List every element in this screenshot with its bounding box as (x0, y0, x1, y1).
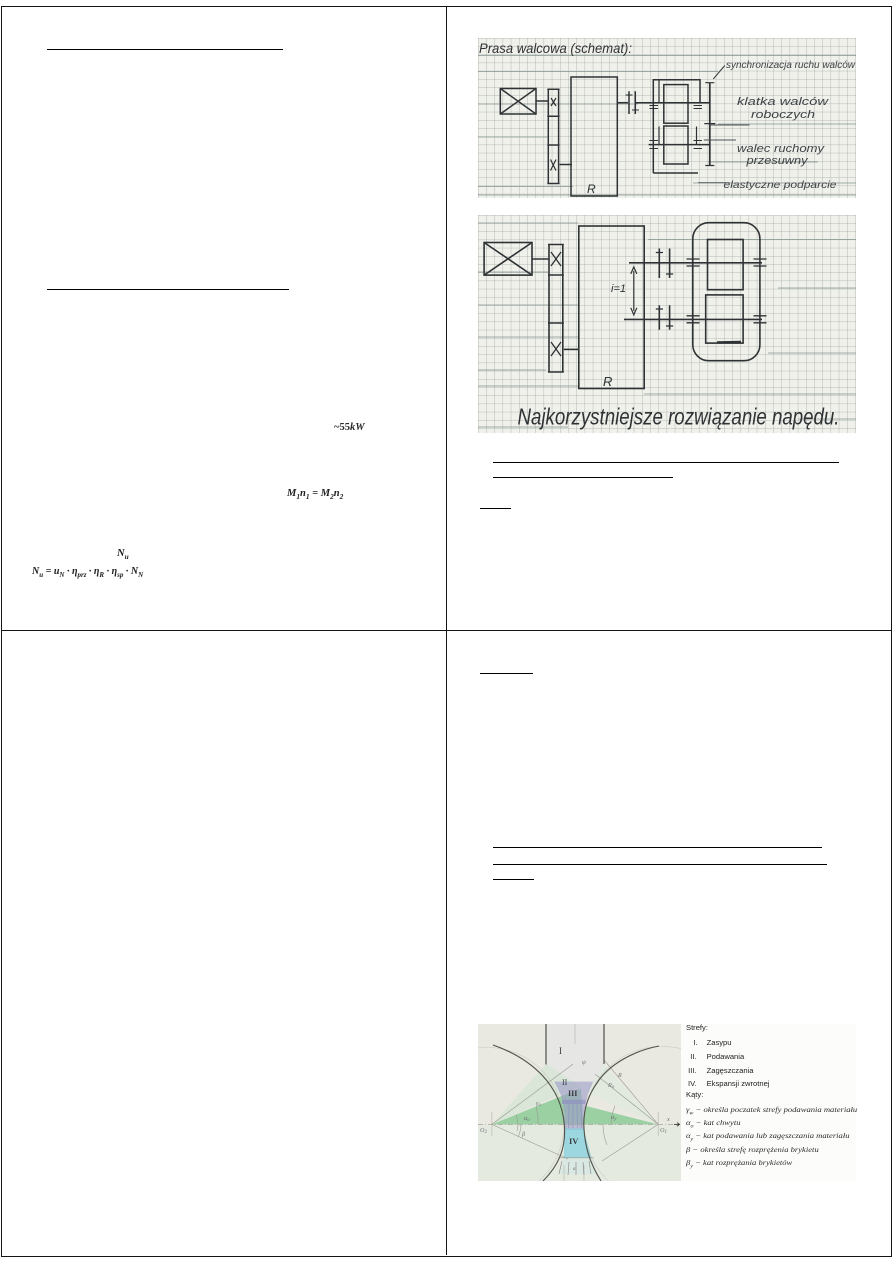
svg-text:I: I (559, 1046, 562, 1056)
svg-text:przesuwny: przesuwny (745, 155, 809, 167)
svg-text:ψ: ψ (582, 1059, 586, 1066)
svg-text:walec ruchomy: walec ruchomy (737, 143, 826, 155)
svg-text:x: x (666, 1116, 670, 1123)
svg-text:elastyczne podparcie: elastyczne podparcie (724, 179, 837, 191)
svg-text:IV: IV (569, 1136, 579, 1146)
svg-text:roboczych: roboczych (751, 109, 815, 121)
svg-text:R: R (617, 1072, 622, 1079)
svg-text:synchronizacja ruchu walców: synchronizacja ruchu walców (726, 60, 856, 71)
svg-text:Prasa walcowa (schemat):: Prasa walcowa (schemat): (479, 40, 632, 56)
svg-text:klatka walców: klatka walców (737, 96, 829, 108)
svg-text:III: III (568, 1089, 577, 1098)
svg-text:R: R (603, 374, 612, 389)
svg-text:i=1: i=1 (611, 283, 626, 295)
svg-text:Najkorzystniejsze rozwiązanie: Najkorzystniejsze rozwiązanie napędu. (518, 404, 840, 430)
svg-text:R: R (587, 182, 596, 196)
svg-text:II: II (562, 1078, 568, 1087)
